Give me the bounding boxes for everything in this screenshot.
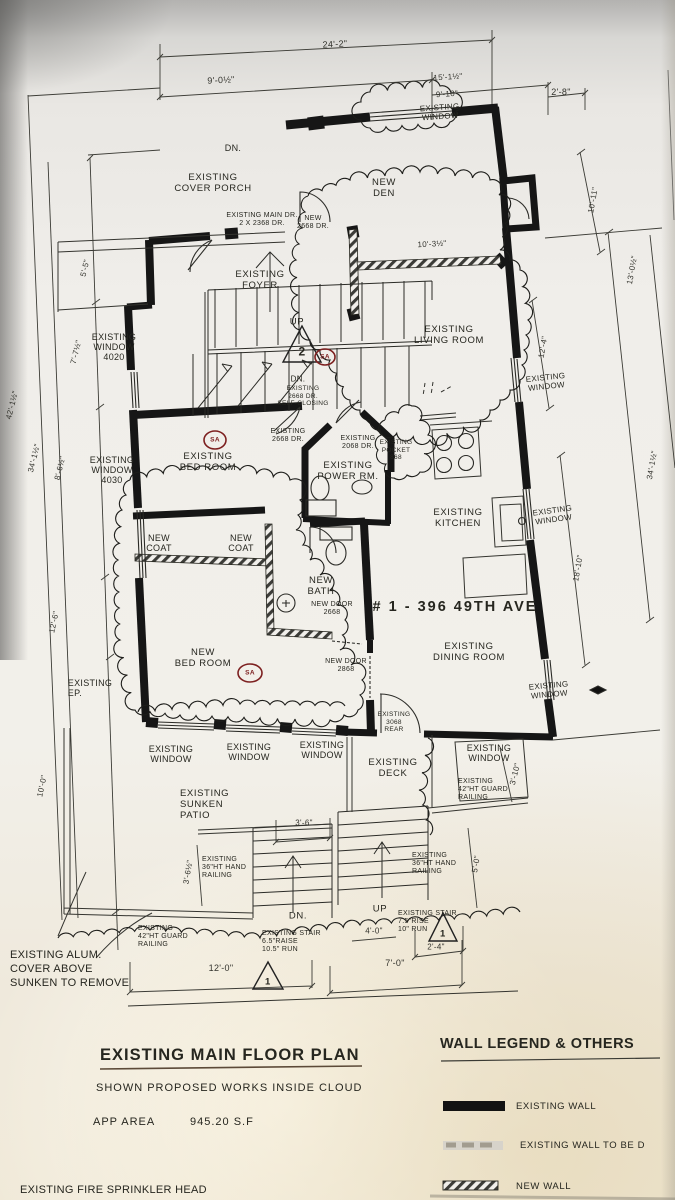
dim-patio-door: 3'-6" [295,819,312,828]
area-value: 945.20 S.F [190,1116,254,1129]
room-coat-2: NEW COAT [228,533,254,553]
legend-item-new-wall: NEW WALL [516,1181,571,1192]
dim-4-0: 4'-0" [365,927,382,936]
stair-dn-foyer: DN. [291,375,306,384]
legend-title: WALL LEGEND & OTHERS [440,1036,634,1052]
window-label-top: EXISTING WINDOW [420,102,461,123]
window-deck: EXISTING WINDOW [467,743,511,763]
door-bed: EXISTING 2668 DR. [270,428,305,444]
dim-12-0: 12'-0" [209,963,234,973]
door-self-closing: EXISTING 2668 DR. SELF-CLOSING [277,385,328,408]
door-bath-new: NEW DOOR 2668 [311,601,353,617]
keynote-1-deck: 1 [440,929,446,940]
room-cover-porch: EXISTING COVER PORCH [174,172,251,194]
legend-item-existing-wall: EXISTING WALL [516,1101,596,1112]
diamond-marker [590,686,606,694]
dim-top-overall: 24'-2" [322,38,347,49]
legend-swatch-existing-wall [443,1101,505,1111]
door-new-den: NEW 2668 DR. [297,215,329,231]
smoke-alarm-foyer: SA [320,353,330,361]
stair-note-patio: EXISTING STAIR 6.5"RAISE 10.5" RUN [262,930,321,954]
room-bed: EXISTING BED ROOM [180,451,237,473]
address: # 1 - 396 49TH AVE [373,599,538,615]
stair-dn-patio: DN. [289,911,307,922]
plan-title: EXISTING MAIN FLOOR PLAN [100,1046,360,1064]
railing-guard-deck: EXISTING 42"HT GUARD RAILING [458,778,508,802]
title-block-rules [100,1058,675,1199]
legend-swatch-demo-wall [443,1141,503,1150]
room-coat-1: NEW COAT [146,533,172,553]
window-dining-right: EXISTING WINDOW [528,679,569,700]
railing-hand-deck: EXISTING 36"HT HAND RAILING [412,852,456,876]
room-dining: EXISTING DINING ROOM [433,641,505,663]
room-sunken-patio: EXISTING SUNKEN PATIO [180,788,229,821]
note-fire-sprinkler: EXISTING FIRE SPRINKLER HEAD [20,1184,207,1197]
railing-guard-patio: EXISTING 42"HT GUARD RAILING [138,925,188,949]
window-bottom-3: EXISTING WINDOW [300,740,344,760]
room-deck: EXISTING DECK [368,757,417,779]
window-bottom-2: EXISTING WINDOW [227,742,271,762]
dim-top-right: 2'-8" [551,87,570,97]
stair-dn-porch: DN. [225,143,241,153]
note-alum-cover: EXISTING ALUM. COVER ABOVE SUNKEN TO REM… [10,948,129,990]
room-power: EXISTING POWER RM. [317,460,378,482]
room-ep: EXISTING EP. [68,678,112,698]
stair-note-deck: EXISTING STAIR 7.5"RISE 10" RUN [398,910,457,934]
window-4030: EXISTING WINDOW 4030 [90,455,134,485]
keynote-2: 2 [299,346,306,359]
room-bath: NEW BATH [307,575,334,597]
keynote-1-patio: 1 [265,977,271,988]
window-bottom-1: EXISTING WINDOW [149,744,193,764]
room-kitchen: EXISTING KITCHEN [433,507,482,529]
door-power: EXISTING 2068 DR. [340,435,375,451]
dim-2-4: 2'-4" [427,943,444,952]
window-4020: EXISTING WINDOW 4020 [92,332,136,362]
smoke-alarm-new-bed: SA [245,669,255,677]
area-label: APP AREA [93,1116,155,1129]
floor-plan-photo: { "address": "# 1 - 396 49TH AVE", "titl… [0,0,675,1200]
sink-power-room [352,480,372,494]
smoke-alarm-bed: SA [210,436,220,444]
door-rear: EXISTING 3068 REAR [378,711,411,734]
plan-subtitle: SHOWN PROPOSED WORKS INSIDE CLOUD [96,1082,362,1095]
stair-up-foyer: UP [290,317,304,328]
room-living: EXISTING LIVING ROOM [414,324,484,346]
door-bed-new: NEW DOOR 2868 [325,658,367,674]
legend-item-demo-wall: EXISTING WALL TO BE D [520,1140,645,1151]
room-foyer: EXISTING FOYER [235,269,284,291]
door-pocket: EXISTING POCKET 868 [380,439,413,462]
stair-up-deck: UP [373,904,387,915]
room-new-bed: NEW BED ROOM [175,647,232,669]
legend-swatch-new-wall [443,1181,498,1190]
door-main-entry: EXISTING MAIN DR. 2 X 2368 DR. [226,212,297,228]
dim-top-left: 9'-0½" [207,74,235,85]
dim-7-0: 7'-0" [385,958,404,968]
railing-hand-patio: EXISTING 36"HT HAND RAILING [202,856,246,880]
floor-plan-drawing [0,0,675,1200]
room-new-den: NEW DEN [372,177,396,199]
dim-top-window: 9'-10" [436,89,459,100]
dim-den-wall: 10'-3½" [417,239,447,250]
toilet-bath-tank [320,527,352,540]
